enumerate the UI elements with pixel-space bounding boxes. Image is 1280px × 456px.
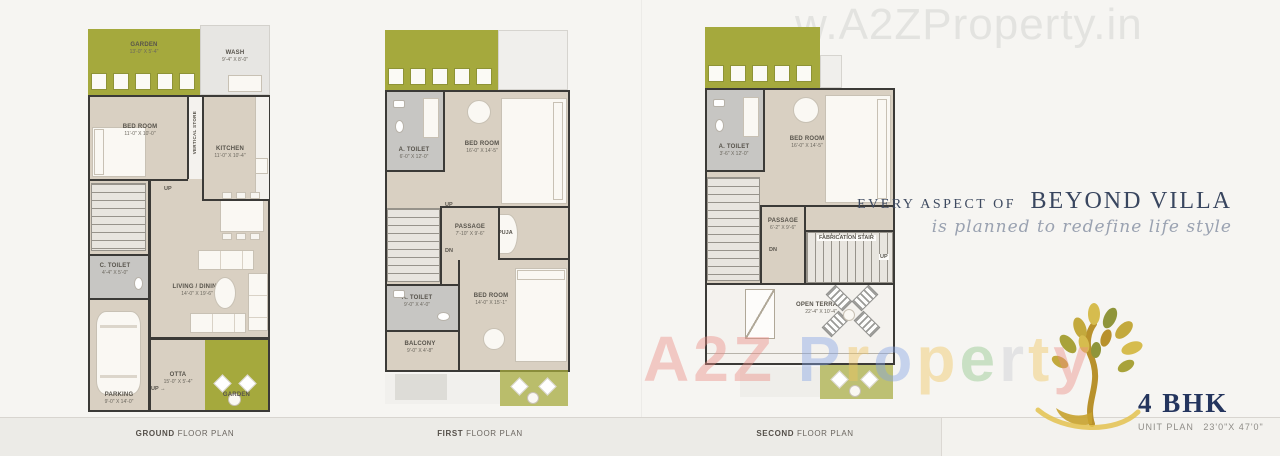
wall [440,206,442,284]
wall [498,258,570,260]
planter-box [135,73,151,90]
watermark-letter: t [1028,323,1053,395]
toilet-fixture [395,120,404,133]
dining-chair [222,192,232,199]
kitchen-counter [255,97,269,200]
open-top-box [820,55,842,88]
car [96,311,141,395]
wash-sink [228,75,262,92]
dining-table [220,200,264,232]
wall [705,283,895,285]
wall [385,170,443,172]
vertical-store-area [189,97,202,179]
watermark-letter: 2 [693,323,733,395]
wall [458,260,460,372]
unit-plan-label: UNIT PLAN [1138,422,1194,432]
planter-box [179,73,195,90]
background-seam [641,0,642,456]
wall [385,284,460,286]
wall [498,206,500,260]
staircase [91,183,146,251]
dn-label: DN [445,248,453,254]
planter-box [388,68,404,85]
dining-chair [222,233,232,240]
bed [515,268,567,362]
wall [760,205,762,283]
watermark-letter: Z [733,323,776,395]
watermark-letter: y [1053,323,1093,395]
wall [804,205,806,283]
watermark-letter: e [959,323,999,395]
wall [705,170,763,172]
watermark-letter: p [916,323,959,395]
planter-box [91,73,107,90]
tagline-script: is planned to redefine life style [857,217,1232,237]
toilet-fixture [715,119,724,132]
car-rear-window [100,375,137,378]
wall [385,330,458,332]
planter-box [113,73,129,90]
watermark-letter: P [798,323,845,395]
wall [763,90,765,172]
up-label: UP [879,254,889,260]
puja-label: PUJA [498,230,513,236]
basin-fixture [393,290,405,298]
unit-plan-size: 23'0"X 47'0" [1203,422,1263,432]
dn-label: DN [769,247,777,253]
staircase [707,177,760,281]
second-floor-caption: SECOND FLOOR PLAN [725,429,885,438]
first-floor-plan: A. TOILET6'-0" X 12'-0" BED ROOM16'-0" X… [385,28,570,406]
garden-table [527,392,539,404]
bed-pillow [517,270,565,280]
planter-box [157,73,173,90]
watermark-letter [776,323,798,395]
toilet-fixture [134,277,143,290]
basin-fixture [393,100,405,108]
flyer-canvas: w.A2ZProperty.in GARDEN13'-0" X 5'-4" WA… [0,0,1280,456]
planter-box [774,65,790,82]
tagline-block: EVERY ASPECT OF BEYOND VILLA is planned … [857,188,1232,237]
terrace-table [843,309,855,321]
lower-strip-box [395,374,447,400]
sofa [248,273,268,331]
wall [88,254,150,256]
basin-fixture [713,99,725,107]
up-label: UP [164,186,172,192]
toilet-fixture [437,312,450,321]
planter-box [708,65,724,82]
sofa [190,313,246,333]
wall [187,97,189,179]
kitchen-appliance [255,158,268,174]
car-windshield [100,325,137,328]
watermark-letter: r [844,323,873,395]
center-watermark: A2Z Property [643,322,1093,396]
wall [202,97,204,200]
dining-chair [250,233,260,240]
ground-floor-plan: GARDEN13'-0" X 5'-4" WASH9'-4" X 8'-0" B… [88,25,270,417]
bed-pillow [94,129,104,175]
planter-box [432,68,448,85]
wall [443,92,445,172]
wall [88,298,150,300]
brand-name: BEYOND VILLA [1030,188,1232,214]
wall [148,181,151,412]
dining-chair [250,192,260,199]
planter-box [752,65,768,82]
wall [88,179,188,181]
stool [483,328,505,350]
center-table [214,277,236,309]
ground-floor-caption: GROUND FLOOR PLAN [105,429,265,438]
watermark-letter: r [999,323,1028,395]
shower-area [423,98,439,138]
shower-area [743,97,759,137]
planter-box [796,65,812,82]
wall [202,199,270,201]
sofa [198,250,254,270]
garden-table [228,393,241,406]
dining-chair [236,233,246,240]
planter-box [410,68,426,85]
unit-block: 4 BHK UNIT PLAN 23'0"X 47'0" [1138,388,1264,432]
tagline-prefix: EVERY ASPECT OF [857,197,1016,212]
first-floor-caption: FIRST FLOOR PLAN [400,429,560,438]
planter-box [730,65,746,82]
side-table [793,97,819,123]
bed-pillow [877,99,887,199]
watermark-letter: o [873,323,916,395]
up-arrow-label: UP → [151,386,166,392]
side-table [467,100,491,124]
wall [440,206,570,208]
dining-chair [236,192,246,199]
watermark-letter: A [643,323,693,395]
unit-type: 4 BHK [1138,388,1264,419]
planter-box [454,68,470,85]
bed-pillow [553,102,563,200]
wall [148,337,270,340]
planter-box [476,68,492,85]
staircase [387,208,440,282]
open-top-area [498,30,568,90]
